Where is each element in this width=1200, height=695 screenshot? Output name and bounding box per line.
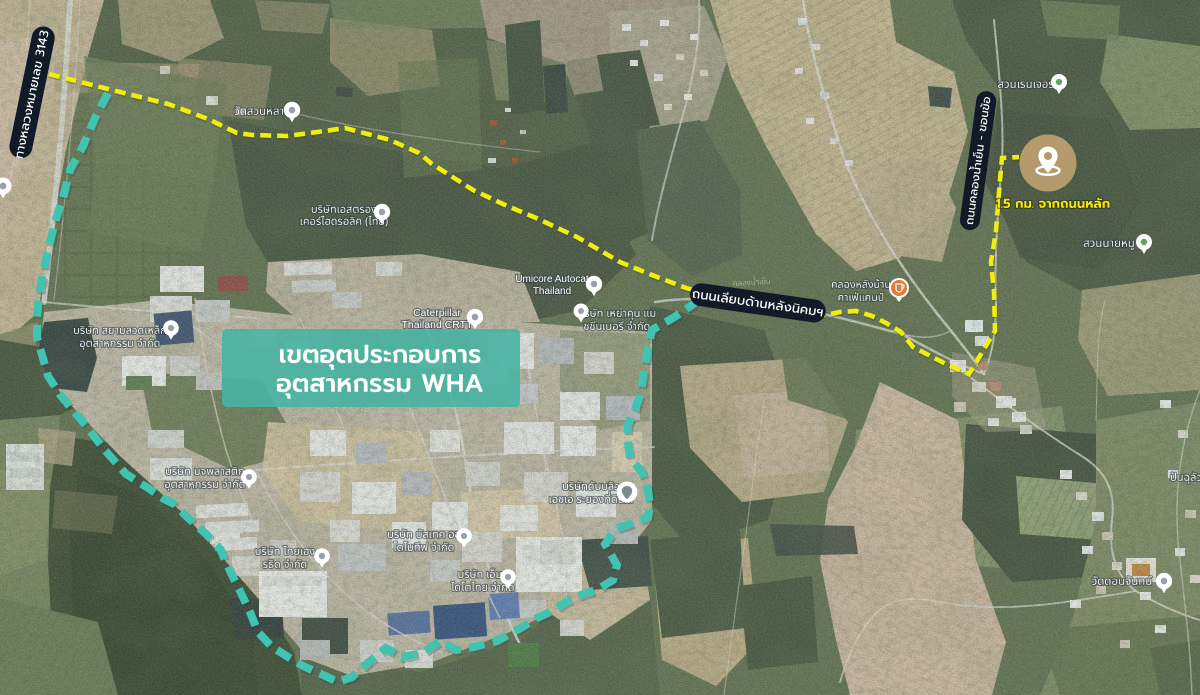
svg-text:Thailand: Thailand (533, 286, 571, 297)
svg-text:Caterpillar: Caterpillar (413, 307, 461, 319)
svg-text:Umicore Autocat: Umicore Autocat (515, 274, 589, 285)
